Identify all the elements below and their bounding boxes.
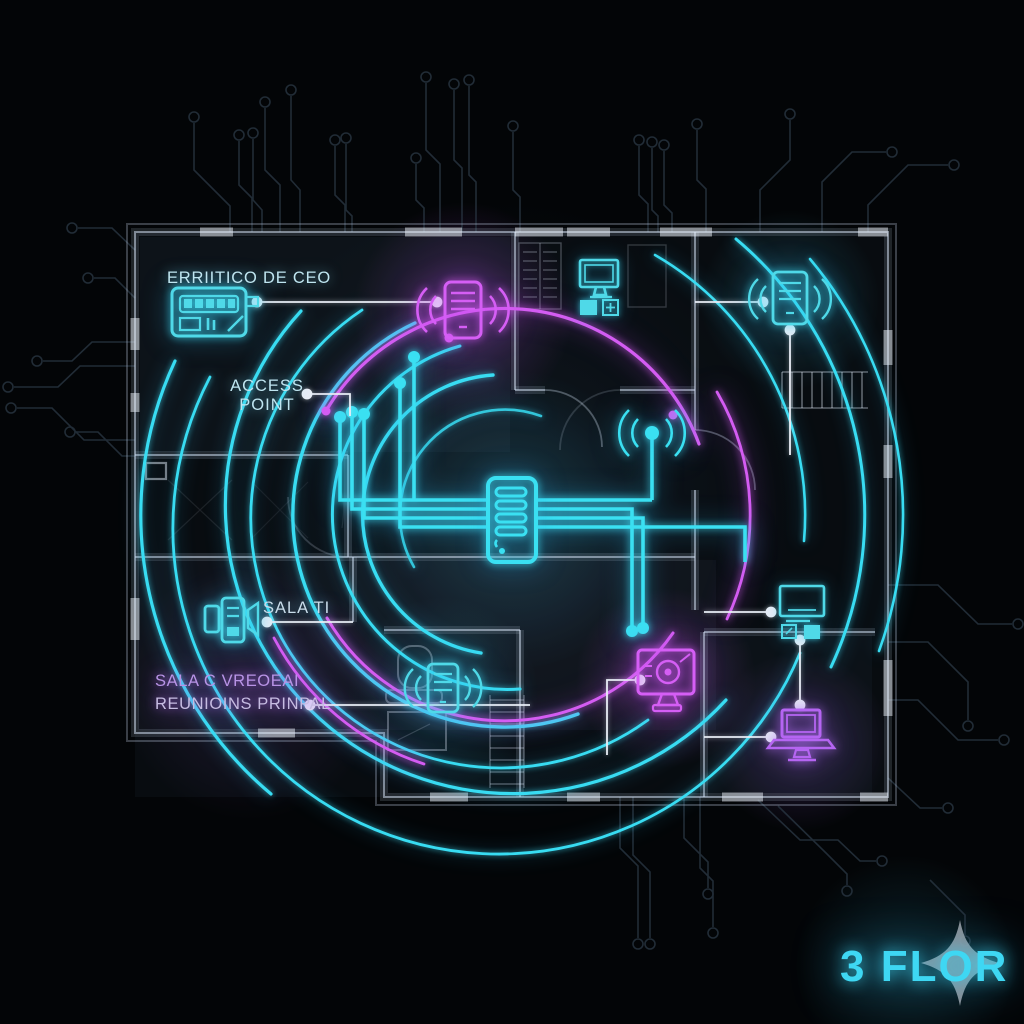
access-point-label-line2: POINT	[239, 396, 294, 414]
ceo-office-label: ERRIITICO DE CEO	[167, 269, 331, 287]
meeting-room-label-line1: SALA C VREOEAI	[155, 672, 299, 690]
floorplan-scene: ERRIITICO DE CEO ACCESS POINT SALA TI SA…	[0, 0, 1024, 1024]
floor-logo-text: 3 FLOR	[840, 942, 1008, 991]
floorplan-canvas: ERRIITICO DE CEO ACCESS POINT SALA TI SA…	[0, 0, 1024, 1024]
access-point-label-line1: ACCESS	[230, 377, 304, 395]
sala-ti-label: SALA TI	[263, 599, 330, 617]
meeting-room-label-line2: REUNIOINS PRINPAL	[155, 695, 331, 713]
